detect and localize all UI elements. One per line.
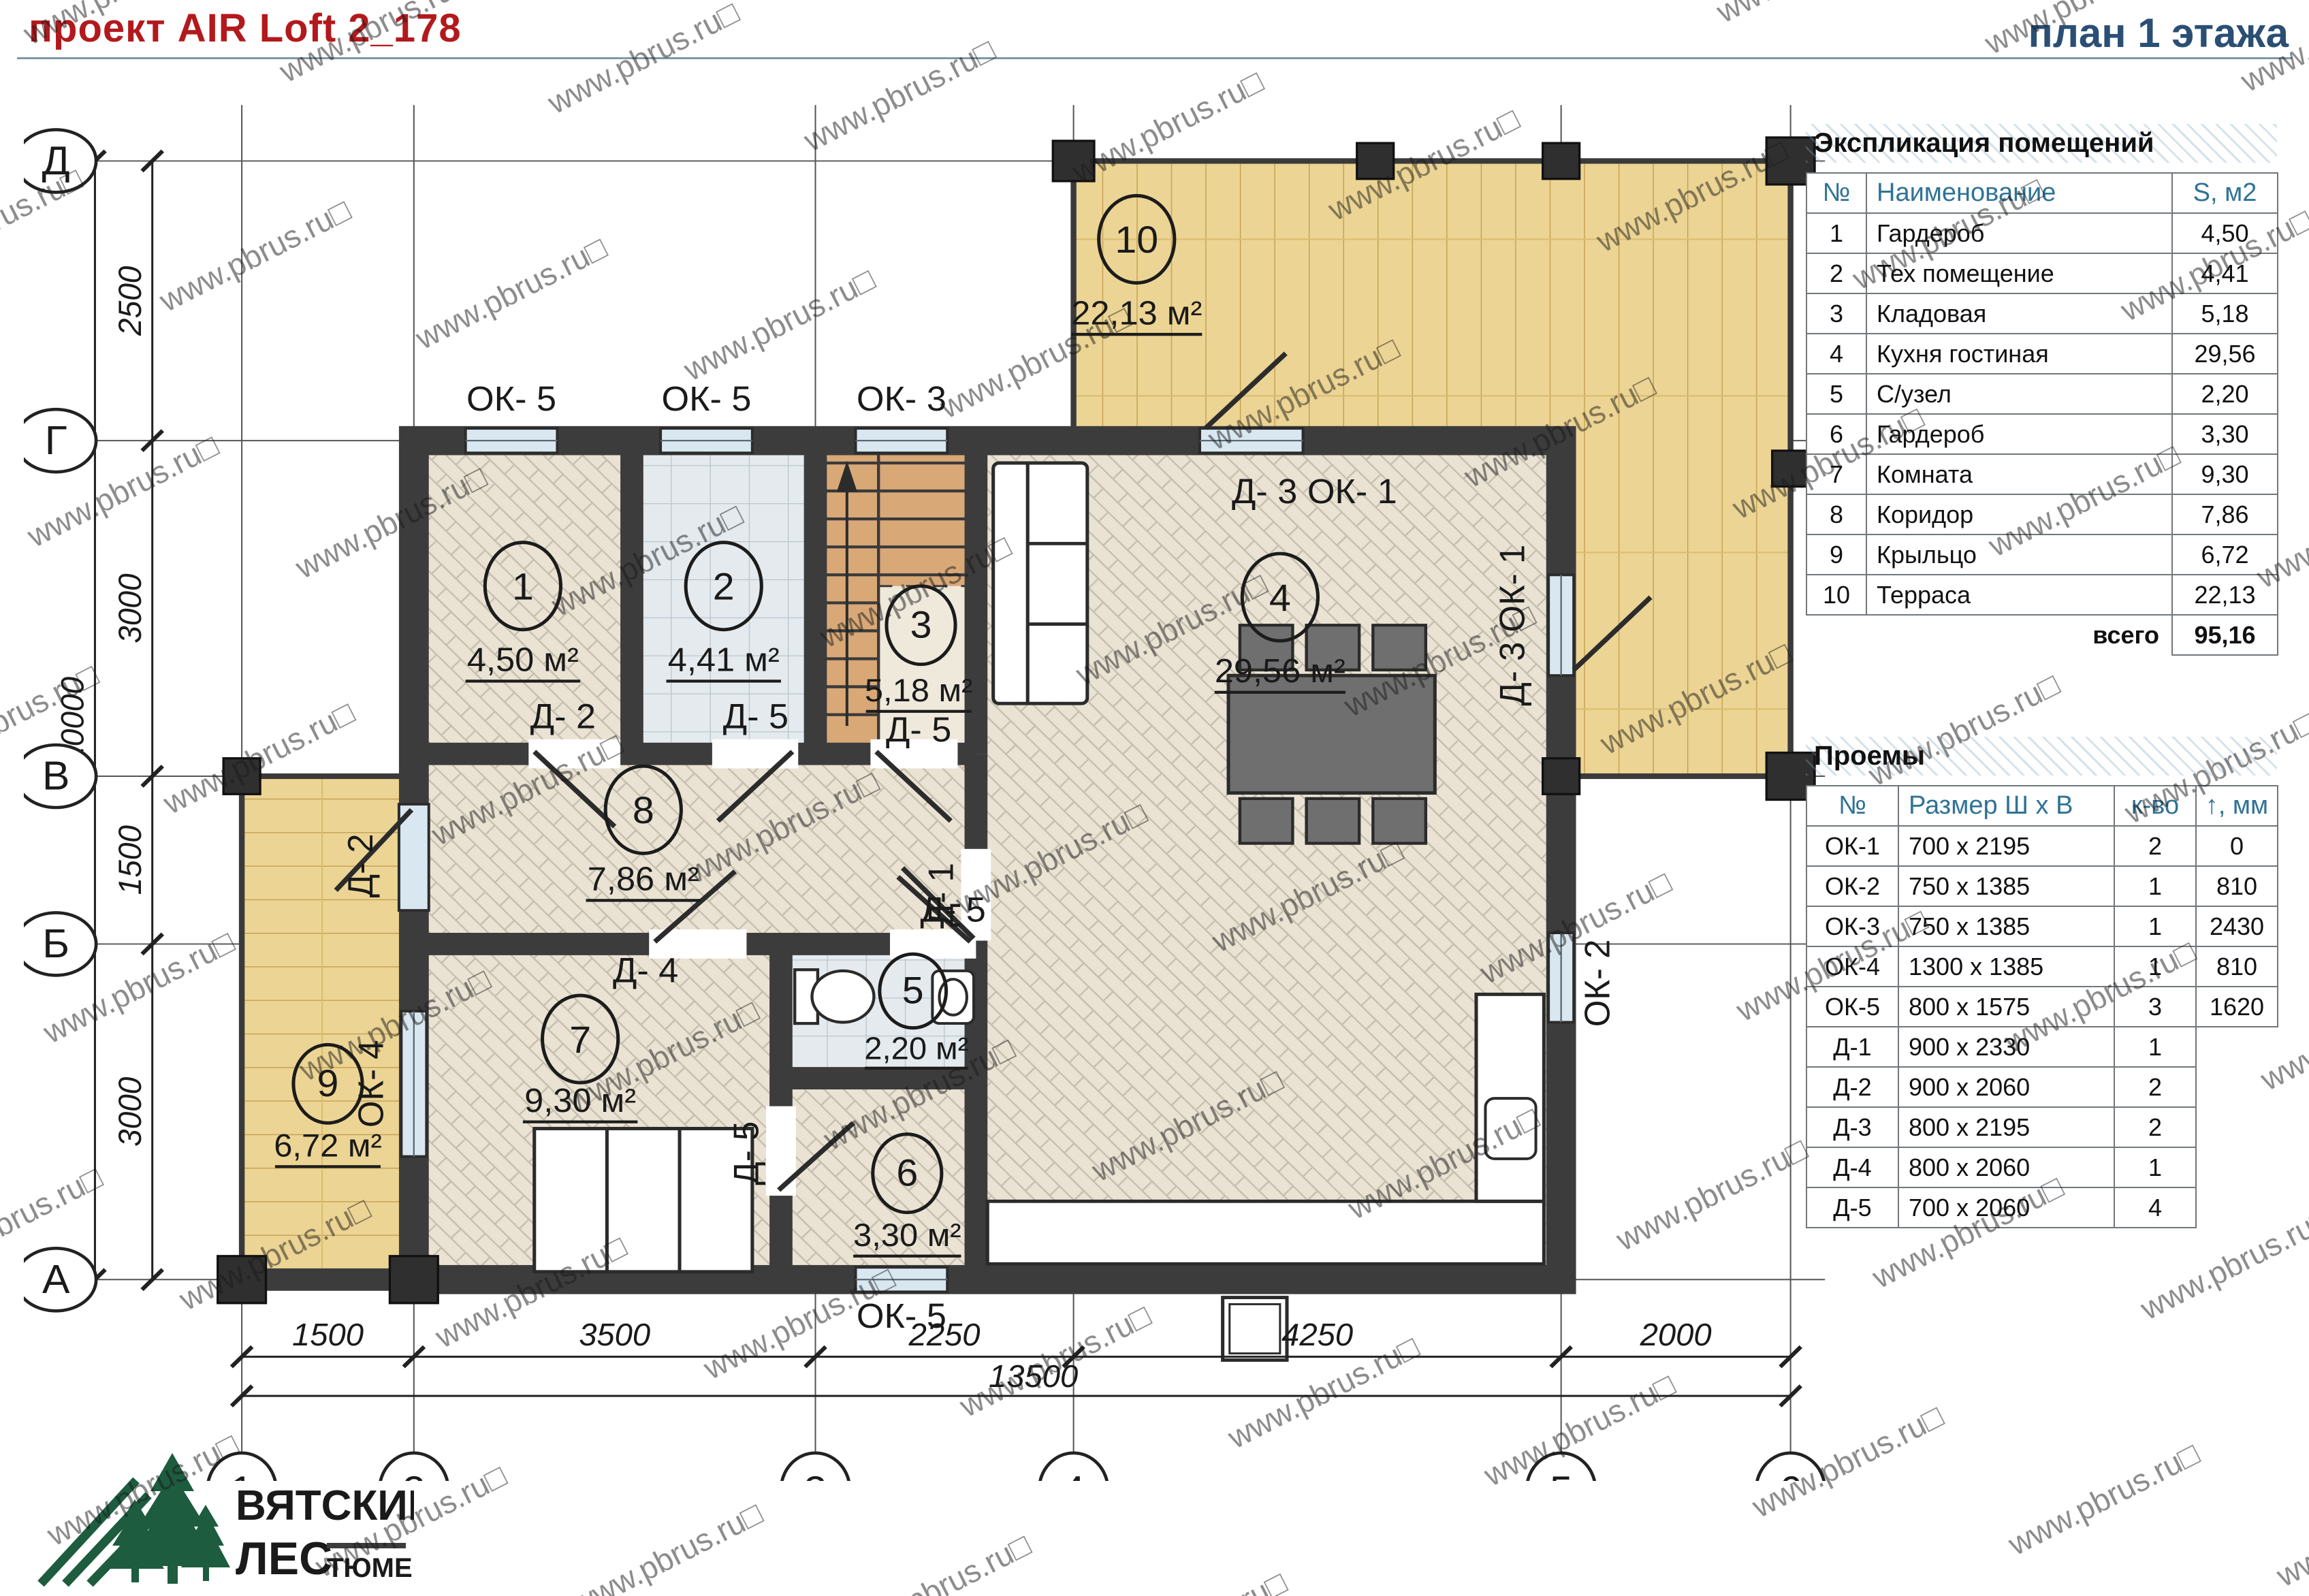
cell: 1 <box>2114 1027 2196 1067</box>
cell: 700 х 2195 <box>1898 826 2114 866</box>
openings-panel: Проемы № Размер Ш х В к-во ↑, мм ОК-1700… <box>1806 737 2277 1228</box>
axis-row-label: Б <box>42 921 69 966</box>
logo-brand-line1: ВЯТСКИЙ <box>236 1482 414 1529</box>
cell: 2 <box>2114 826 2196 866</box>
cell <box>2196 1107 2278 1147</box>
rooms-table-title: Экспликация помещений <box>1806 124 2277 163</box>
page-subtitle: план 1 этажа <box>2028 10 2289 57</box>
cell: 3 <box>1806 293 1866 334</box>
svg-text:6,72 м²: 6,72 м² <box>274 1128 382 1164</box>
cell: Гардероб <box>1866 414 2172 454</box>
cell: Кладовая <box>1866 293 2172 334</box>
cell <box>2196 1027 2278 1067</box>
page-title: проект AIR Loft 2_178 <box>29 5 462 51</box>
total-row: всего 95,16 <box>1806 615 2278 655</box>
cell: 900 х 2330 <box>1898 1027 2114 1067</box>
table-row: Д-3800 х 21952 <box>1806 1107 2278 1147</box>
svg-text:6: 6 <box>896 1151 918 1194</box>
cell: Комната <box>1866 454 2172 494</box>
cell: Коридор <box>1866 494 2172 534</box>
bed <box>535 1129 752 1272</box>
door-window-label: Д- 3 ОК- 1 <box>1492 545 1532 706</box>
col-header: № <box>1806 173 1866 213</box>
cell: ОК-1 <box>1806 826 1898 866</box>
table-row: 8Коридор7,86 <box>1806 494 2278 534</box>
cell: Терраса <box>1866 575 2172 615</box>
cell: 7 <box>1806 454 1866 494</box>
door-label: Д- 2 <box>530 697 596 735</box>
col-header: ↑, мм <box>2196 786 2278 826</box>
cell: 750 х 1385 <box>1898 906 2114 946</box>
cell: ОК-5 <box>1806 987 1898 1027</box>
table-row: 5С/узел2,20 <box>1806 374 2278 414</box>
door-window-label: Д- 3 ОК- 1 <box>1232 472 1397 511</box>
cell: 1300 х 1385 <box>1898 946 2114 987</box>
svg-text:9: 9 <box>317 1062 339 1104</box>
table-row: 2Тех помещение4,41 <box>1806 253 2278 293</box>
cell: 2,20 <box>2172 374 2278 414</box>
axis-col-label: 3 <box>804 1468 827 1481</box>
cell <box>2196 1187 2278 1228</box>
company-logo: ВЯТСКИЙ ЛЕС ТЮМЕНЬ <box>33 1438 414 1593</box>
cell: 6,72 <box>2172 534 2278 575</box>
svg-text:22,13 м²: 22,13 м² <box>1071 294 1202 332</box>
cell: 2 <box>2114 1067 2196 1107</box>
svg-text:5: 5 <box>902 969 924 1011</box>
cell: Д-3 <box>1806 1107 1898 1147</box>
cell: ОК-3 <box>1806 906 1898 946</box>
cell: 2 <box>2114 1107 2196 1147</box>
door-label: Д- 5 <box>723 697 789 735</box>
cell: 1620 <box>2196 987 2278 1027</box>
floor-plan: 1 4,50 м² 2 4,41 м² 3 5,18 м² 4 29,56 м² <box>24 71 1836 1481</box>
col-header: к-во <box>2114 786 2196 826</box>
cell: 2430 <box>2196 906 2278 946</box>
svg-text:2: 2 <box>713 565 735 607</box>
cell <box>2196 1147 2278 1187</box>
total-label: всего <box>1866 615 2172 655</box>
porch-deck <box>242 776 414 1279</box>
cell: 7,86 <box>2172 494 2278 534</box>
window-label: ОК- 4 <box>351 1040 391 1128</box>
axis-col-label: 6 <box>1779 1468 1802 1481</box>
cell: 5 <box>1806 374 1866 414</box>
svg-text:10: 10 <box>1115 219 1158 261</box>
axis-col-label: 5 <box>1550 1468 1573 1481</box>
dim-bottom: 1500 <box>292 1318 364 1352</box>
cell: 10 <box>1806 575 1866 615</box>
table-row: 4Кухня гостиная29,56 <box>1806 334 2278 374</box>
cell: Крыльцо <box>1866 534 2172 575</box>
table-row: Д-4800 х 20601 <box>1806 1147 2278 1187</box>
cell: 4,41 <box>2172 253 2278 293</box>
dim-left: 3000 <box>112 573 148 643</box>
svg-text:8: 8 <box>633 789 654 831</box>
dim-bottom: 2000 <box>1640 1318 1712 1352</box>
door-label: Д- 1 <box>921 863 961 927</box>
cell: 2 <box>1806 253 1866 293</box>
svg-text:5,18 м²: 5,18 м² <box>865 672 973 708</box>
dim-bottom: 3500 <box>579 1318 650 1352</box>
door-label: Д- 5 <box>726 1121 766 1185</box>
dim-left: 3000 <box>112 1077 148 1147</box>
logo-trees-icon <box>41 1453 230 1584</box>
svg-text:4,50 м²: 4,50 м² <box>467 641 579 678</box>
cell: Д-2 <box>1806 1067 1898 1107</box>
window-label: ОК- 2 <box>1577 940 1617 1027</box>
cell <box>2196 1067 2278 1107</box>
cell: 800 х 1575 <box>1898 987 2114 1027</box>
svg-text:29,56 м²: 29,56 м² <box>1215 652 1345 690</box>
svg-text:4: 4 <box>1269 577 1291 619</box>
door-label: Д- 4 <box>613 951 678 989</box>
axis-col-label: 4 <box>1062 1468 1085 1481</box>
table-row: ОК-41300 х 13851810 <box>1806 946 2278 987</box>
svg-text:2,20 м²: 2,20 м² <box>864 1031 968 1066</box>
cell: Тех помещение <box>1866 253 2172 293</box>
cell: 810 <box>2196 946 2278 987</box>
svg-text:7,86 м²: 7,86 м² <box>588 860 699 897</box>
cell: 22,13 <box>2172 575 2278 615</box>
table-row: Д-5700 х 20604 <box>1806 1187 2278 1228</box>
cell: Гардероб <box>1866 213 2172 253</box>
openings-table-title: Проемы <box>1806 737 2277 776</box>
table-row: ОК-3750 х 138512430 <box>1806 906 2278 946</box>
cell: 4,50 <box>2172 213 2278 253</box>
door-label: Д- 5 <box>886 710 951 749</box>
dim-bottom: 4250 <box>1281 1318 1353 1352</box>
svg-text:7: 7 <box>569 1018 591 1060</box>
cell: 9 <box>1806 534 1866 575</box>
window-label: ОК- 5 <box>661 379 751 417</box>
cell: С/узел <box>1866 374 2172 414</box>
cell: 6 <box>1806 414 1866 454</box>
table-row: 7Комната9,30 <box>1806 454 2278 494</box>
cell: ОК-4 <box>1806 946 1898 987</box>
table-row: Д-2900 х 20602 <box>1806 1067 2278 1107</box>
page: проект AIR Loft 2_178 план 1 этажа <box>0 0 2309 1596</box>
table-row: 9Крыльцо6,72 <box>1806 534 2278 575</box>
table-row: ОК-1700 х 219520 <box>1806 826 2278 866</box>
axis-row-label: Г <box>45 418 67 463</box>
total-value: 95,16 <box>2172 615 2278 655</box>
cell: 5,18 <box>2172 293 2278 334</box>
svg-text:3,30 м²: 3,30 м² <box>853 1217 961 1254</box>
sofa <box>993 463 1087 703</box>
cell: Д-1 <box>1806 1027 1898 1067</box>
cell: Кухня гостиная <box>1866 334 2172 374</box>
table-header-row: № Наименование S, м2 <box>1806 173 2278 213</box>
cell: 800 х 2195 <box>1898 1107 2114 1147</box>
cell <box>1806 615 1866 655</box>
table-row: 3Кладовая5,18 <box>1806 293 2278 334</box>
cell: 3 <box>2114 987 2196 1027</box>
cell: 810 <box>2196 866 2278 906</box>
cell: 8 <box>1806 494 1866 534</box>
door-label: Д- 2 <box>340 833 381 897</box>
cell: ОК-2 <box>1806 866 1898 906</box>
axis-row-label: В <box>42 753 69 798</box>
cell: 1 <box>1806 213 1866 253</box>
cell: Д-4 <box>1806 1147 1898 1187</box>
cell: 1 <box>2114 1147 2196 1187</box>
table-row: 1Гардероб4,50 <box>1806 213 2278 253</box>
cell: 900 х 2060 <box>1898 1067 2114 1107</box>
cell: 800 х 2060 <box>1898 1147 2114 1187</box>
openings-table: № Размер Ш х В к-во ↑, мм ОК-1700 х 2195… <box>1806 785 2278 1228</box>
cell: 1 <box>2114 906 2196 946</box>
toilet <box>795 970 874 1023</box>
cell: 1 <box>2114 946 2196 987</box>
cell: 3,30 <box>2172 414 2278 454</box>
rooms-panel: Экспликация помещений № Наименование S, … <box>1806 124 2277 656</box>
table-row: ОК-2750 х 13851810 <box>1806 866 2278 906</box>
rooms-table: № Наименование S, м2 1Гардероб4,50 2Тех … <box>1806 172 2278 656</box>
col-header: Наименование <box>1866 173 2172 213</box>
table-row: 6Гардероб3,30 <box>1806 414 2278 454</box>
cell: 0 <box>2196 826 2278 866</box>
cell: 4 <box>1806 334 1866 374</box>
dim-bottom: 2250 <box>908 1318 981 1352</box>
table-header-row: № Размер Ш х В к-во ↑, мм <box>1806 786 2278 826</box>
window-label: ОК- 3 <box>857 379 946 417</box>
svg-text:9,30 м²: 9,30 м² <box>524 1081 636 1119</box>
table-row: 10Терраса22,13 <box>1806 575 2278 615</box>
logo-brand-line3: ТЮМЕНЬ <box>327 1553 414 1583</box>
header-divider <box>17 57 2292 59</box>
cell: Д-5 <box>1806 1187 1898 1228</box>
dim-left: 2500 <box>112 266 148 336</box>
col-header: Размер Ш х В <box>1898 786 2114 826</box>
cell: 700 х 2060 <box>1898 1187 2114 1228</box>
dim-bottom-total: 13500 <box>989 1359 1078 1394</box>
logo-brand-line2: ЛЕС <box>236 1533 332 1584</box>
axis-row-label: А <box>42 1257 70 1302</box>
table-row: Д-1900 х 23301 <box>1806 1027 2278 1067</box>
window-label: ОК- 5 <box>466 379 556 417</box>
cell: 9,30 <box>2172 454 2278 494</box>
svg-text:3: 3 <box>910 603 932 645</box>
svg-text:1: 1 <box>512 565 534 607</box>
dim-left: 1500 <box>112 825 148 895</box>
table-row: ОК-5800 х 157531620 <box>1806 987 2278 1027</box>
col-header: № <box>1806 786 1898 826</box>
axis-row-label: Д <box>42 138 70 183</box>
cell: 1 <box>2114 866 2196 906</box>
col-header: S, м2 <box>2172 173 2278 213</box>
svg-text:4,41 м²: 4,41 м² <box>668 641 780 678</box>
cell: 4 <box>2114 1187 2196 1228</box>
cell: 29,56 <box>2172 334 2278 374</box>
cell: 750 х 1385 <box>1898 866 2114 906</box>
